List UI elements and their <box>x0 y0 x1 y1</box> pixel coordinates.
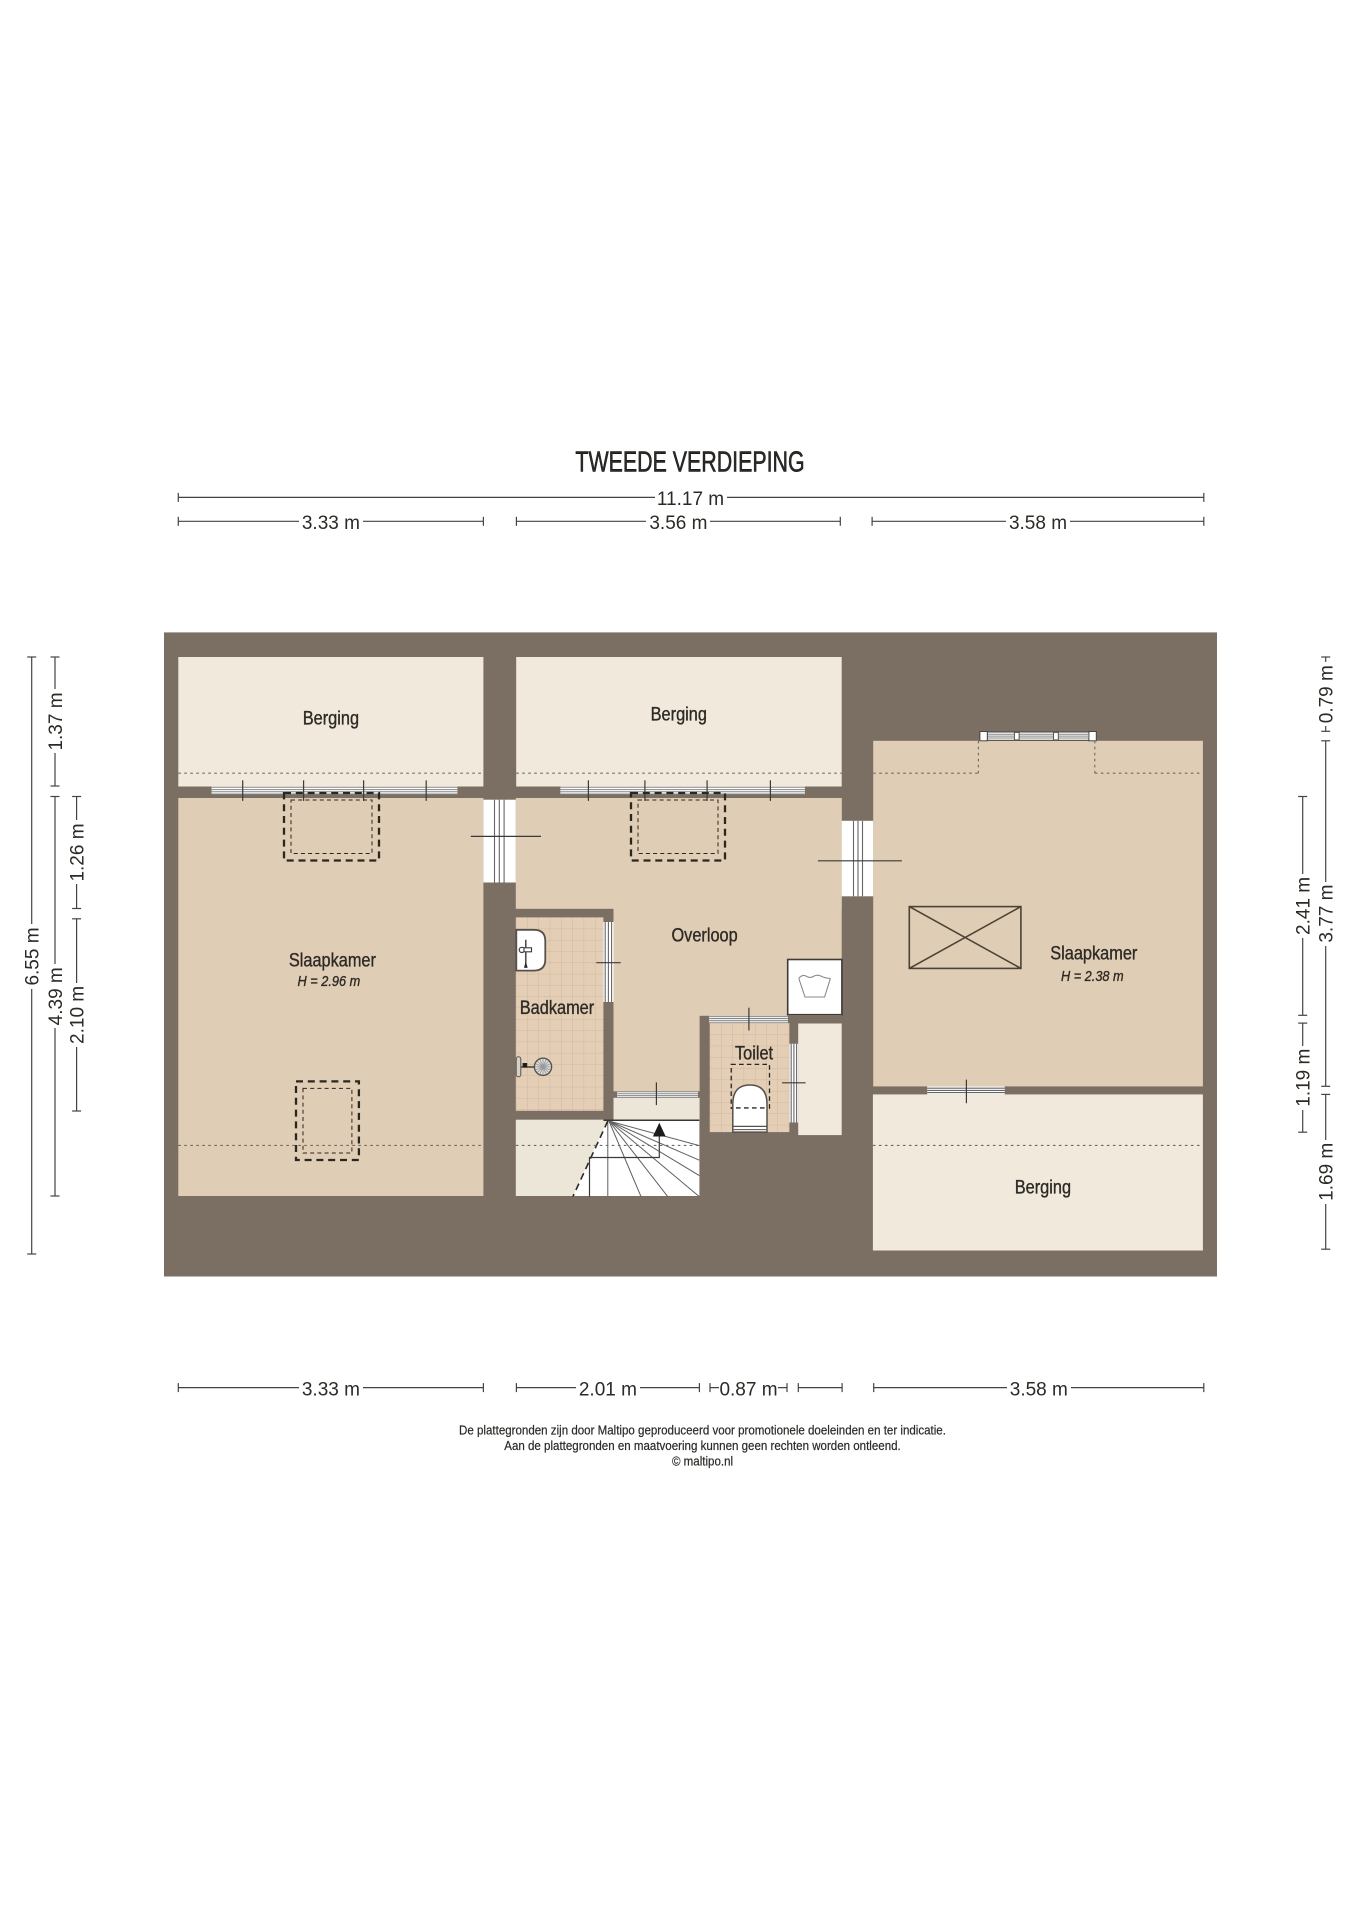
svg-text:3.58 m: 3.58 m <box>1010 1379 1068 1400</box>
svg-text:6.55 m: 6.55 m <box>23 927 44 985</box>
svg-text:1.37 m: 1.37 m <box>46 692 67 750</box>
svg-text:© maltipo.nl: © maltipo.nl <box>672 1454 733 1469</box>
svg-text:2.10 m: 2.10 m <box>68 986 89 1044</box>
svg-text:Aan de plattegronden en maatvo: Aan de plattegronden en maatvoering kunn… <box>504 1438 900 1453</box>
svg-text:Berging: Berging <box>303 707 359 728</box>
svg-text:0.87 m: 0.87 m <box>719 1379 777 1400</box>
svg-text:TWEEDE VERDIEPING: TWEEDE VERDIEPING <box>575 447 804 479</box>
svg-text:2.01 m: 2.01 m <box>579 1379 637 1400</box>
svg-text:Badkamer: Badkamer <box>520 997 594 1018</box>
svg-text:11.17 m: 11.17 m <box>657 489 724 510</box>
svg-text:1.26 m: 1.26 m <box>68 823 89 881</box>
svg-text:2.41 m: 2.41 m <box>1294 877 1315 935</box>
svg-text:Toilet: Toilet <box>735 1042 773 1063</box>
svg-text:3.33 m: 3.33 m <box>302 1379 360 1400</box>
svg-text:H = 2.96 m: H = 2.96 m <box>298 973 361 989</box>
svg-text:Overloop: Overloop <box>671 924 737 945</box>
svg-text:3.33 m: 3.33 m <box>302 513 360 534</box>
svg-text:Slaapkamer: Slaapkamer <box>1050 942 1137 963</box>
svg-text:H = 2.38 m: H = 2.38 m <box>1061 968 1124 984</box>
svg-text:3.77 m: 3.77 m <box>1317 885 1338 943</box>
svg-text:1.69 m: 1.69 m <box>1317 1143 1338 1201</box>
svg-text:Berging: Berging <box>1015 1177 1071 1198</box>
svg-text:4.39 m: 4.39 m <box>46 967 67 1025</box>
svg-text:3.56 m: 3.56 m <box>649 513 707 534</box>
svg-text:0.79 m: 0.79 m <box>1317 665 1338 723</box>
svg-text:Slaapkamer: Slaapkamer <box>289 949 376 970</box>
svg-text:1.19 m: 1.19 m <box>1294 1049 1315 1107</box>
svg-text:De plattegronden zijn door Mal: De plattegronden zijn door Maltipo gepro… <box>459 1423 946 1438</box>
svg-text:3.58 m: 3.58 m <box>1009 513 1067 534</box>
svg-text:Berging: Berging <box>651 703 707 724</box>
